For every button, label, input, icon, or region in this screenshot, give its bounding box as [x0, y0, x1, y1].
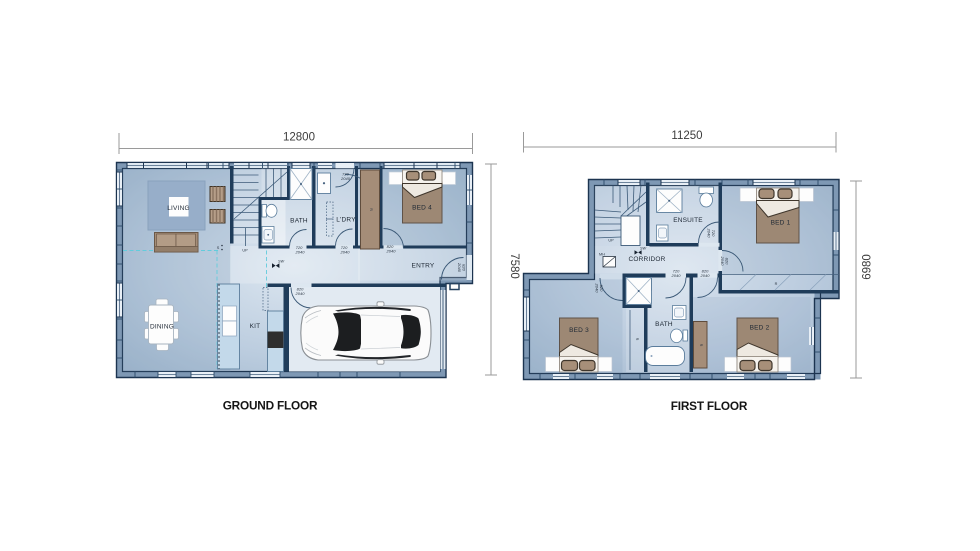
- svg-text:UP: UP: [242, 249, 248, 253]
- svg-text:KIT: KIT: [250, 323, 261, 330]
- svg-text:BED 1: BED 1: [771, 220, 791, 227]
- svg-text:L'DRY: L'DRY: [336, 217, 356, 224]
- svg-text:FIRST FLOOR: FIRST FLOOR: [671, 399, 748, 413]
- svg-text:R: R: [775, 282, 778, 286]
- svg-text:2040: 2040: [340, 250, 351, 255]
- svg-text:2040: 2040: [386, 249, 397, 254]
- svg-text:BED 4: BED 4: [412, 205, 432, 212]
- svg-text:SW: SW: [278, 260, 285, 264]
- svg-text:MH: MH: [599, 253, 605, 257]
- svg-text:2040: 2040: [457, 262, 462, 273]
- svg-text:12800: 12800: [283, 132, 315, 144]
- svg-text:2040: 2040: [340, 176, 351, 181]
- svg-text:11250: 11250: [671, 130, 702, 142]
- svg-text:BATH: BATH: [655, 321, 673, 328]
- svg-text:S: S: [217, 246, 220, 250]
- svg-text:GROUND FLOOR: GROUND FLOOR: [223, 399, 318, 413]
- svg-text:CORRIDOR: CORRIDOR: [629, 256, 666, 263]
- svg-text:DINING: DINING: [150, 324, 174, 331]
- svg-text:ENSUITE: ENSUITE: [673, 217, 703, 224]
- svg-text:R: R: [369, 208, 373, 211]
- svg-text:R: R: [635, 338, 639, 341]
- svg-text:UP: UP: [608, 239, 614, 243]
- svg-text:2040: 2040: [295, 291, 306, 296]
- svg-text:6980: 6980: [862, 254, 874, 280]
- svg-text:R: R: [699, 344, 703, 347]
- svg-text:BED 3: BED 3: [569, 327, 589, 334]
- svg-text:LIVING: LIVING: [167, 205, 190, 212]
- svg-text:BATH: BATH: [290, 218, 308, 225]
- svg-text:2040: 2040: [295, 250, 306, 255]
- svg-text:2040: 2040: [671, 273, 682, 278]
- svg-text:BED 2: BED 2: [750, 325, 770, 332]
- svg-text:ENTRY: ENTRY: [412, 263, 435, 270]
- svg-text:2040: 2040: [595, 283, 600, 294]
- svg-text:7580: 7580: [508, 253, 520, 279]
- svg-text:2040: 2040: [700, 273, 711, 278]
- svg-text:2040: 2040: [707, 228, 712, 239]
- svg-text:SW: SW: [640, 247, 647, 251]
- svg-text:2040: 2040: [720, 256, 725, 267]
